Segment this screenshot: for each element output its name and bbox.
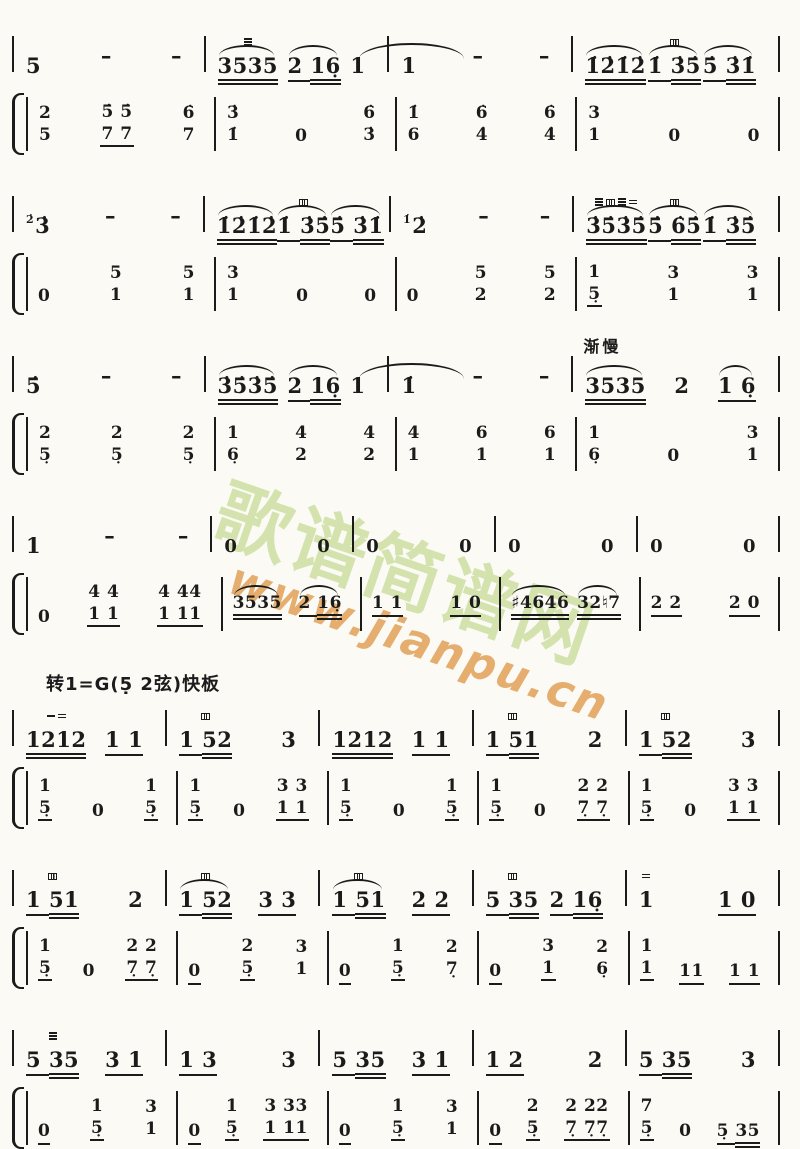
- accomp-bar: 15̣03 31 1: [178, 775, 326, 821]
- note-token: 2: [128, 889, 143, 910]
- chord-bottom-note: 1: [541, 957, 555, 981]
- accomp-bar: 16̣031: [577, 422, 778, 466]
- finger-number-glyph: [642, 874, 650, 879]
- accomp-bar: 416161: [397, 422, 576, 466]
- finger-number-glyph: [201, 873, 210, 880]
- fingering-mark: [26, 871, 79, 881]
- chord-bottom-note: 5̣: [182, 444, 196, 466]
- chord-top-note: 6̇: [182, 102, 196, 124]
- fingering-mark: [26, 1031, 79, 1041]
- chord-token: 51: [182, 262, 196, 306]
- note-token: 1 52: [639, 729, 692, 750]
- chord-token: 15̣: [90, 1095, 104, 1141]
- note-token: 3: [741, 729, 756, 750]
- note-token: 2: [588, 729, 603, 750]
- note-token: 1 1: [372, 595, 403, 612]
- chord-top-note: 1: [391, 1095, 405, 1117]
- note-token: 1: [350, 55, 365, 76]
- chord-top-note: 1: [587, 261, 601, 283]
- chord-top-note: 3: [666, 262, 680, 284]
- melody-bar: 1 512 2: [320, 889, 471, 914]
- note-token: 1̇2̇1̇2̇: [585, 55, 645, 76]
- chord-bottom-note: 7 7: [100, 123, 133, 147]
- chord-token: 25̣: [38, 422, 52, 466]
- rest-zero: 0: [748, 128, 760, 145]
- chord-top-note: 3: [144, 1096, 158, 1118]
- rest-zero: 0: [83, 963, 95, 980]
- melody-bar: 1 523: [167, 729, 318, 754]
- chord-token: 3 31 1: [276, 775, 309, 821]
- chord-token: 6̇3̇: [362, 102, 376, 146]
- melody-bar: 35352 16̣1: [206, 55, 388, 80]
- chord-bottom-note: 5̣: [489, 797, 503, 821]
- chord-bottom-note: 5̣: [391, 957, 405, 981]
- chord-bottom-note: 5̣: [90, 1117, 104, 1141]
- chord-token: 27̣: [445, 936, 459, 980]
- rest-zero: 0: [295, 128, 307, 145]
- note-token: 3: [281, 729, 296, 750]
- chord-token: 5̇ 5̇7 7: [100, 101, 133, 147]
- melody-bar: 1 33: [167, 1049, 318, 1074]
- chord-top-note: 6̇: [475, 102, 489, 124]
- rest-zero: 0: [38, 1123, 50, 1140]
- chord-bottom-note: 2: [362, 444, 376, 466]
- melody-bar: 00: [638, 538, 778, 560]
- accomp-bar: 35352 16̣: [223, 595, 360, 613]
- chord-token: 16̣: [226, 422, 240, 466]
- rest-zero: 0: [650, 538, 663, 556]
- barline: [778, 356, 780, 392]
- finger-number-glyph: [48, 873, 57, 880]
- chord-top-note: 2: [526, 1095, 540, 1117]
- melody-bar: 00: [212, 538, 352, 560]
- chord-top-note: 3: [294, 936, 308, 958]
- dash-rest: –: [104, 525, 115, 556]
- chord-token: 31: [587, 102, 601, 146]
- barline: [778, 1030, 780, 1066]
- chord-top-note: 6̇: [362, 102, 376, 124]
- chord-token: 16̣: [587, 422, 601, 466]
- score-body: 5––35352 16̣11––1̇2̇1̇2̇1̇ 3̇5̇5̇ 3̇1̇25…: [0, 0, 800, 1148]
- finger-number-glyph: [244, 38, 252, 46]
- rest-zero: 0: [296, 288, 308, 305]
- chord-token: 61: [475, 422, 489, 466]
- finger-number-glyph: [629, 200, 637, 205]
- fingering-mark: [586, 197, 646, 207]
- chord-token: 41: [407, 422, 421, 466]
- chord-token: 15̣: [339, 775, 353, 821]
- barline: [778, 870, 780, 906]
- note-token: 3535: [233, 595, 282, 612]
- note-token: 2 16̣: [288, 55, 341, 76]
- dash-rest: –: [539, 45, 550, 76]
- accomp-row: 255̇ 5̇7 76̇73̇1̇06̇3̇1̇66̇4̇6̇4̇3100: [12, 94, 780, 154]
- note-token: 2̇3̇: [26, 215, 50, 236]
- chord-token: 15̣: [587, 261, 601, 307]
- chord-token: 31: [541, 935, 555, 981]
- note-token: 1212: [26, 729, 86, 750]
- chord-bottom-note: 1: [182, 284, 196, 306]
- note-token: 2 16̣: [299, 595, 342, 612]
- melody-bar: 5̇––: [14, 365, 204, 400]
- chord-top-note: 2: [38, 102, 52, 124]
- rest-zero: 0: [679, 1123, 691, 1140]
- melody-bar: 1––: [389, 45, 571, 80]
- rest-zero: 0: [92, 803, 104, 820]
- note-token: 1̇ 3̇5̇: [648, 55, 701, 76]
- melody-bar: 渐慢353521 6̣: [573, 375, 778, 400]
- chord-token: 11: [640, 935, 654, 981]
- chord-token: 61: [543, 422, 557, 466]
- note-token: 1 51: [332, 889, 385, 910]
- chord-bottom-note: 5̣: [445, 797, 459, 821]
- melody-bar: 1 523 3: [167, 889, 318, 914]
- rest-zero: 0: [534, 803, 546, 820]
- melody-bar: 5 353: [627, 1049, 778, 1074]
- note-token: 1 52: [179, 729, 232, 750]
- accomp-bar: 16̣4242: [216, 422, 395, 466]
- note-token: 1: [401, 55, 416, 76]
- chord-top-note: 1: [188, 775, 202, 797]
- finger-number-glyph: [299, 199, 308, 206]
- accomp-bar: 03126̣: [479, 935, 627, 981]
- rest-zero: 0: [364, 288, 376, 305]
- melody-bar: 1̇––: [389, 365, 571, 400]
- chord-top-note: 2: [38, 422, 52, 444]
- chord-token: 2 227̣ 7̣7̣: [564, 1095, 609, 1141]
- chord-top-note: 3: [445, 1096, 459, 1118]
- chord-bottom-note: 5̣: [526, 1117, 540, 1141]
- chord-top-note: 4: [362, 422, 376, 444]
- chord-top-note: 3: [541, 935, 555, 957]
- chord-token: 15̣: [445, 775, 459, 821]
- barline: [778, 931, 780, 985]
- note-token: 1 1: [412, 729, 450, 750]
- finger-number-glyph: [595, 198, 603, 206]
- rest-zero: 0: [38, 288, 50, 305]
- dash-rest: –: [540, 205, 551, 236]
- chord-bottom-note: 5̣: [391, 1117, 405, 1141]
- chord-token: 15̣: [391, 935, 405, 981]
- note-token: 1 52: [179, 889, 232, 910]
- chord-bottom-note: 5̣: [144, 797, 158, 821]
- chord-token: 15̣: [489, 775, 503, 821]
- melody-row: 5 353 11 335 353 11 225 353: [12, 1024, 780, 1074]
- barline: [778, 196, 780, 232]
- finger-number-glyph: [47, 715, 55, 717]
- tempo-mark: 渐慢: [583, 339, 621, 355]
- note-token: 2 0: [729, 595, 760, 612]
- note-token: 1̇ 3̇5̇: [703, 215, 756, 236]
- accomp-bar: 1̇66̇4̇6̇4̇: [397, 102, 576, 146]
- accomp-bar: 15̣02 27̣ 7̣: [479, 775, 627, 821]
- note-token: 11: [679, 963, 704, 980]
- barline: [778, 577, 780, 631]
- chord-bottom-note: 5̣: [587, 283, 601, 307]
- chord-top-note: 1: [38, 935, 52, 957]
- melody-bar: 11 0: [627, 889, 778, 914]
- accomp-bar: 015̣31: [28, 1095, 176, 1141]
- chord-top-note: 1: [391, 935, 405, 957]
- rest-zero: 0: [317, 538, 330, 556]
- melody-bar: 00: [496, 538, 636, 560]
- chord-top-note: 4 4: [87, 581, 120, 603]
- chord-token: 52: [474, 262, 488, 306]
- note-token: 3̇5̇3̇5̇: [586, 215, 646, 236]
- rest-zero: 0: [667, 448, 679, 465]
- chord-bottom-note: 2: [474, 284, 488, 306]
- note-token: 1 1: [105, 729, 143, 750]
- chord-top-note: 7: [640, 1095, 654, 1117]
- chord-top-note: 3: [746, 262, 760, 284]
- chord-top-note: 2: [595, 936, 609, 958]
- chord-bottom-note: 2: [294, 444, 308, 466]
- chord-bottom-note: 3̇: [362, 124, 376, 146]
- accomp-bar: 025̣2 227̣ 7̣7̣: [479, 1095, 627, 1141]
- chord-token: 1̇6: [407, 102, 421, 146]
- note-token: 1̇2̇: [403, 215, 427, 236]
- note-token: 5̇ 3̇1̇: [703, 55, 756, 76]
- chord-token: 31: [746, 422, 760, 466]
- accomp-row: 15̣02 27̣ 7̣025̣31015̣27̣03126̣11111 1: [12, 928, 780, 988]
- note-token: 5: [26, 55, 41, 76]
- chord-token: 42: [362, 422, 376, 466]
- chord-bottom-note: 5̣: [188, 797, 202, 821]
- note-token: 1 51: [26, 889, 79, 910]
- note-token: 3 3: [258, 889, 296, 910]
- dash-rest: –: [171, 365, 182, 396]
- accomp-bar: 15̣3131: [577, 261, 778, 307]
- chord-token: 2 27̣ 7̣: [577, 775, 610, 821]
- chord-top-note: 3: [226, 262, 240, 284]
- accomp-bar: 11111 1: [630, 935, 778, 981]
- rest-zero: 0: [224, 538, 237, 556]
- note-token: 渐慢3535: [585, 375, 645, 396]
- chord-bottom-note: 2: [543, 284, 557, 306]
- rest-zero: 0: [743, 538, 756, 556]
- accomp-bar: 2 22 0: [641, 595, 778, 613]
- note-token: 5̇ 6̇5̇: [648, 215, 701, 236]
- chord-top-note: 2: [240, 935, 254, 957]
- chord-bottom-note: 1 11: [157, 603, 202, 627]
- music-system: 2̇3̇––1̇2̇1̇2̇1̇ 3̇5̇5̇ 3̇1̇1̇2̇––3̇5̇3̇…: [12, 190, 780, 314]
- chord-token: 15̣: [38, 935, 52, 981]
- chord-top-note: 3 33: [263, 1095, 308, 1117]
- chord-bottom-note: 1: [407, 444, 421, 466]
- chord-bottom-note: 6: [407, 124, 421, 146]
- chord-bottom-note: 1 1: [276, 797, 309, 821]
- accomp-row: 04 41 14 441 1135352 16̣1 11 0♯464632♮72…: [12, 574, 780, 634]
- chord-bottom-note: 5̣: [38, 797, 52, 821]
- sheet-music-scan: { "header": { "text": "转1=G(5\u0323 2弦)快…: [0, 0, 800, 1113]
- accomp-bar: 04 41 14 441 11: [28, 581, 221, 627]
- chord-bottom-note: 1: [109, 284, 123, 306]
- systems-before-key-change: 5––35352 16̣11––1̇2̇1̇2̇1̇ 3̇5̇5̇ 3̇1̇25…: [12, 30, 780, 634]
- chord-top-note: 4 44: [157, 581, 202, 603]
- chord-top-note: 3 3: [727, 775, 760, 797]
- chord-bottom-note: 5: [38, 124, 52, 146]
- chord-top-note: 3: [746, 422, 760, 444]
- chord-token: 3 31 1: [727, 775, 760, 821]
- accomp-row: 015̣31015̣3 331 11015̣31025̣2 227̣ 7̣7̣7…: [12, 1088, 780, 1148]
- chord-top-note: 2: [182, 422, 196, 444]
- note-token: 2 2: [412, 889, 450, 910]
- chord-top-note: 5: [182, 262, 196, 284]
- note-token: 1 51: [486, 729, 539, 750]
- chord-top-note: 4: [294, 422, 308, 444]
- chord-bottom-note: 5̣: [110, 444, 124, 466]
- chord-top-note: 5: [543, 262, 557, 284]
- rest-zero: 0: [188, 1123, 200, 1140]
- chord-top-note: 1: [225, 1095, 239, 1117]
- chord-token: 31: [666, 262, 680, 306]
- accomp-bracket: [12, 413, 24, 475]
- rest-zero: 0: [339, 1123, 351, 1140]
- chord-token: 25̣: [110, 422, 124, 466]
- fingering-mark: [26, 711, 86, 721]
- accomp-bracket: [12, 927, 24, 989]
- barline: [778, 97, 780, 151]
- chord-token: 25̣: [240, 935, 254, 981]
- fingering-mark: [179, 871, 232, 881]
- finger-number-glyph: [201, 713, 210, 720]
- note-token: 1 0: [718, 889, 756, 910]
- fingering-mark: [277, 197, 330, 207]
- note-token: 2: [674, 375, 689, 396]
- chord-top-note: 3: [587, 102, 601, 124]
- finger-number-glyph: [670, 39, 679, 46]
- fingering-mark: [179, 711, 232, 721]
- barline: [778, 36, 780, 72]
- chord-token: 15̣: [391, 1095, 405, 1141]
- chord-top-note: 5̇ 5̇: [100, 101, 133, 123]
- note-token: 1 0: [450, 595, 481, 612]
- chord-top-note: 1̇: [407, 102, 421, 124]
- finger-number-glyph: [661, 713, 670, 720]
- chord-bottom-note: 1: [746, 444, 760, 466]
- melody-bar: 1 512: [14, 889, 165, 914]
- grace-note: 2̇: [26, 213, 34, 226]
- dash-rest: –: [105, 205, 116, 236]
- dash-rest: –: [178, 525, 189, 556]
- chord-bottom-note: 5̣: [225, 1117, 239, 1141]
- chord-top-note: 5: [474, 262, 488, 284]
- chord-token: 31: [226, 262, 240, 306]
- accomp-bar: 15̣02 27̣ 7̣: [28, 935, 176, 981]
- chord-top-note: 1: [640, 935, 654, 957]
- rest-zero: 0: [339, 963, 351, 980]
- chord-bottom-note: 1 11: [263, 1117, 308, 1141]
- accomp-bar: 25̣25̣25̣: [28, 422, 214, 466]
- chord-bottom-note: 1: [475, 444, 489, 466]
- chord-token: 15̣: [225, 1095, 239, 1141]
- chord-token: 26̣: [595, 936, 609, 980]
- chord-token: 42: [294, 422, 308, 466]
- accomp-bar: 3̇1̇06̇3̇: [216, 102, 395, 146]
- chord-bottom-note: 1 1: [727, 797, 760, 821]
- chord-token: 15̣: [188, 775, 202, 821]
- chord-top-note: 1: [640, 775, 654, 797]
- accomp-bar: 15̣015̣: [329, 775, 477, 821]
- barline: [778, 516, 780, 552]
- chord-bottom-note: 7̣ 7̣7̣: [564, 1117, 609, 1141]
- accomp-bracket: [12, 1087, 24, 1149]
- note-token: 5̇: [26, 375, 41, 396]
- chord-token: 15̣: [144, 775, 158, 821]
- rest-zero: 0: [489, 1123, 501, 1140]
- chord-top-note: 6: [543, 422, 557, 444]
- rest-zero: 0: [684, 803, 696, 820]
- accomp-row: 25̣25̣25̣16̣424241616116̣031: [12, 414, 780, 474]
- dash-rest: –: [472, 365, 483, 396]
- chord-token: 15̣: [38, 775, 52, 821]
- chord-bottom-note: 5̣: [240, 957, 254, 981]
- melody-bar: 5––: [14, 45, 204, 80]
- chord-top-note: 5: [109, 262, 123, 284]
- music-system: 12121 11 52312121 11 5121 52315̣015̣15̣0…: [12, 704, 780, 828]
- accomp-bar: 75̣05̣ 35: [630, 1095, 778, 1141]
- note-token: 5 35: [332, 1049, 385, 1070]
- rest-zero: 0: [38, 609, 50, 626]
- accomp-bar: 05151: [28, 262, 214, 306]
- chord-top-note: 3̇: [226, 102, 240, 124]
- chord-bottom-note: 7̣: [445, 958, 459, 980]
- dash-rest: –: [101, 45, 112, 76]
- melody-row: 1––00000000: [12, 510, 780, 560]
- chord-token: 25̣: [182, 422, 196, 466]
- note-token: 5̇ 3̇1̇: [330, 215, 383, 236]
- chord-bottom-note: 1: [666, 284, 680, 306]
- note-token: 1 2: [486, 1049, 524, 1070]
- melody-row: 1 5121 523 31 512 25 352 16̣11 0: [12, 864, 780, 914]
- accomp-bracket: [12, 253, 24, 315]
- melody-row: 2̇3̇––1̇2̇1̇2̇1̇ 3̇5̇5̇ 3̇1̇1̇2̇––3̇5̇3̇…: [12, 190, 780, 240]
- note-token: 1̇2̇1̇2̇: [217, 215, 277, 236]
- melody-row: 12121 11 52312121 11 5121 523: [12, 704, 780, 754]
- finger-number-glyph: [58, 714, 66, 719]
- rest-zero: 0: [188, 963, 200, 980]
- chord-token: 4 441 11: [157, 581, 202, 627]
- barline: [778, 417, 780, 471]
- melody-row: 5̇––3̇5̇3̇5̇2 16̣11̇––渐慢353521 6̣: [12, 350, 780, 400]
- chord-top-note: 2: [110, 422, 124, 444]
- rest-zero: 0: [668, 128, 680, 145]
- accomp-bracket: [12, 573, 24, 635]
- chord-token: 31: [144, 1096, 158, 1140]
- melody-bar: 1 523: [627, 729, 778, 754]
- note-token: 3: [741, 1049, 756, 1070]
- rest-zero: 0: [459, 538, 472, 556]
- accomp-bar: 15̣015̣: [28, 775, 176, 821]
- chord-token: 31: [746, 262, 760, 306]
- chord-bottom-note: 1: [445, 1118, 459, 1140]
- finger-number-glyph: [508, 713, 517, 720]
- systems-after-key-change: 12121 11 52312121 11 5121 52315̣015̣15̣0…: [12, 704, 780, 1148]
- fingering-mark: [486, 711, 539, 721]
- music-system: 1 5121 523 31 512 25 352 16̣11 015̣02 27…: [12, 864, 780, 988]
- rest-zero: 0: [508, 538, 521, 556]
- note-token: 2 16̣: [550, 889, 603, 910]
- chord-top-note: 4: [407, 422, 421, 444]
- music-system: 5––35352 16̣11––1̇2̇1̇2̇1̇ 3̇5̇5̇ 3̇1̇25…: [12, 30, 780, 154]
- fingering-mark: [648, 197, 701, 207]
- chord-top-note: 6: [475, 422, 489, 444]
- fingering-mark: [639, 711, 692, 721]
- chord-bottom-note: 1: [640, 957, 654, 981]
- rest-zero: 0: [393, 803, 405, 820]
- barline: [778, 257, 780, 311]
- dash-rest: –: [539, 365, 550, 396]
